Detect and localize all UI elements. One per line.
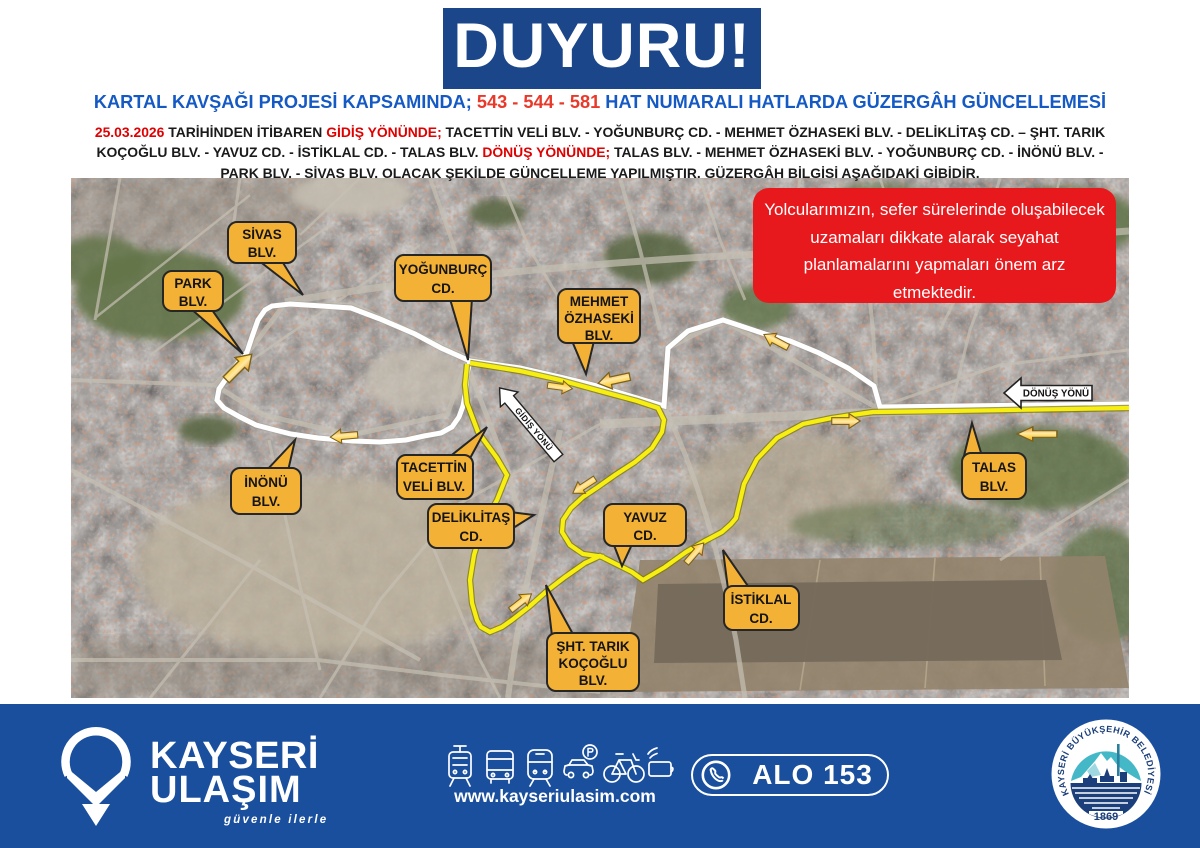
svg-text:ÖZHASEKİ: ÖZHASEKİ bbox=[564, 311, 634, 326]
svg-text:DÖNÜŞ YÖNÜ: DÖNÜŞ YÖNÜ bbox=[1023, 389, 1089, 400]
svg-text:MEHMET: MEHMET bbox=[570, 294, 629, 309]
svg-text:YAVUZ: YAVUZ bbox=[623, 510, 667, 525]
svg-text:BLV.: BLV. bbox=[579, 673, 608, 688]
svg-text:BLV.: BLV. bbox=[252, 494, 281, 509]
svg-text:KOÇOĞLU: KOÇOĞLU bbox=[559, 656, 628, 671]
svg-text:TALAS: TALAS bbox=[972, 460, 1016, 475]
svg-text:SİVAS: SİVAS bbox=[242, 227, 282, 242]
svg-text:İNÖNÜ: İNÖNÜ bbox=[244, 475, 288, 490]
svg-text:CD.: CD. bbox=[431, 281, 454, 296]
svg-text:BLV.: BLV. bbox=[585, 328, 614, 343]
svg-text:BLV.: BLV. bbox=[179, 294, 208, 309]
svg-text:TACETTİN: TACETTİN bbox=[401, 460, 467, 475]
svg-text:YOĞUNBURÇ: YOĞUNBURÇ bbox=[399, 262, 488, 277]
svg-text:VELİ BLV.: VELİ BLV. bbox=[403, 479, 465, 494]
svg-text:CD.: CD. bbox=[459, 529, 482, 544]
svg-text:CD.: CD. bbox=[749, 611, 772, 626]
svg-text:ŞHT. TARIK: ŞHT. TARIK bbox=[556, 639, 629, 654]
svg-text:DELİKLİTAŞ: DELİKLİTAŞ bbox=[432, 510, 511, 525]
svg-text:BLV.: BLV. bbox=[980, 479, 1009, 494]
svg-text:1869: 1869 bbox=[1094, 811, 1118, 823]
svg-text:İSTİKLAL: İSTİKLAL bbox=[731, 592, 792, 607]
svg-text:CD.: CD. bbox=[633, 528, 656, 543]
svg-text:BLV.: BLV. bbox=[248, 245, 277, 260]
svg-text:PARK: PARK bbox=[174, 276, 212, 291]
